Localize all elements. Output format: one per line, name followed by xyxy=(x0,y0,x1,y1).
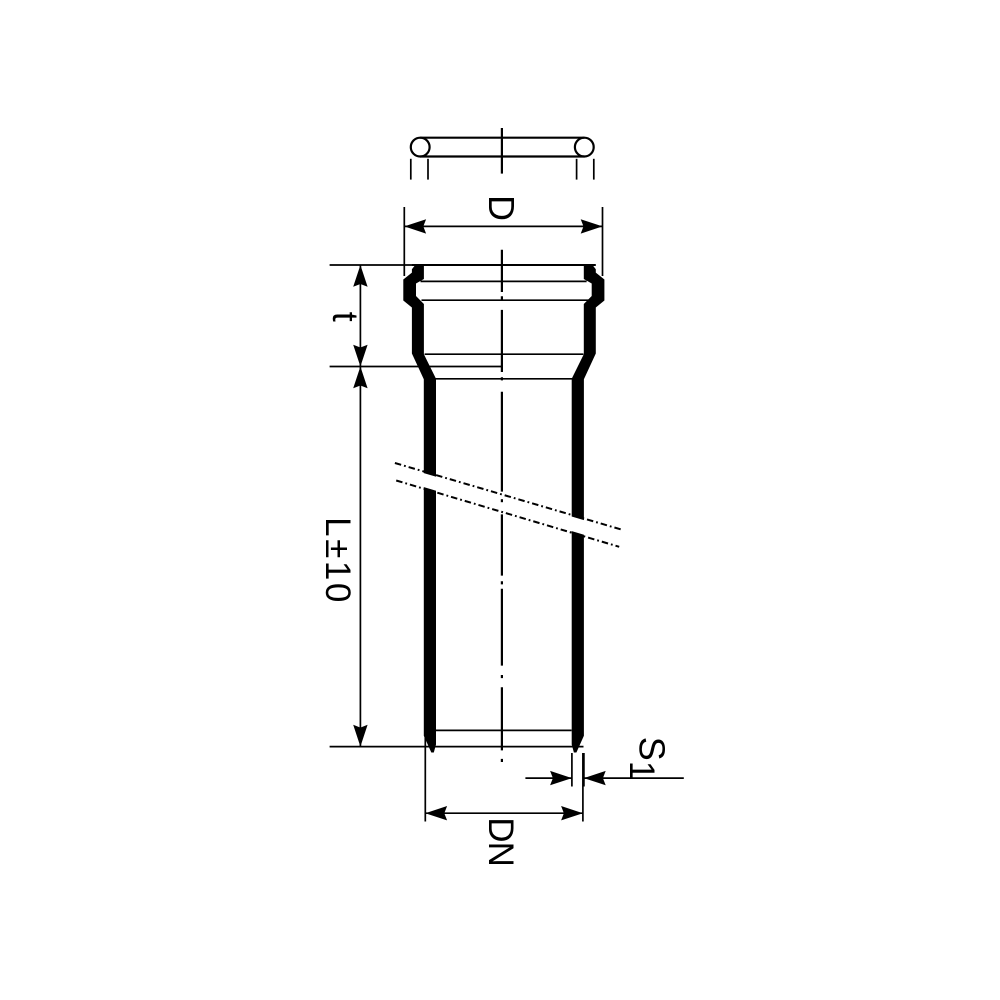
svg-text:DN: DN xyxy=(481,817,520,866)
svg-text:t: t xyxy=(325,312,366,322)
svg-text:L±10: L±10 xyxy=(318,517,357,605)
svg-text:D: D xyxy=(481,195,522,221)
